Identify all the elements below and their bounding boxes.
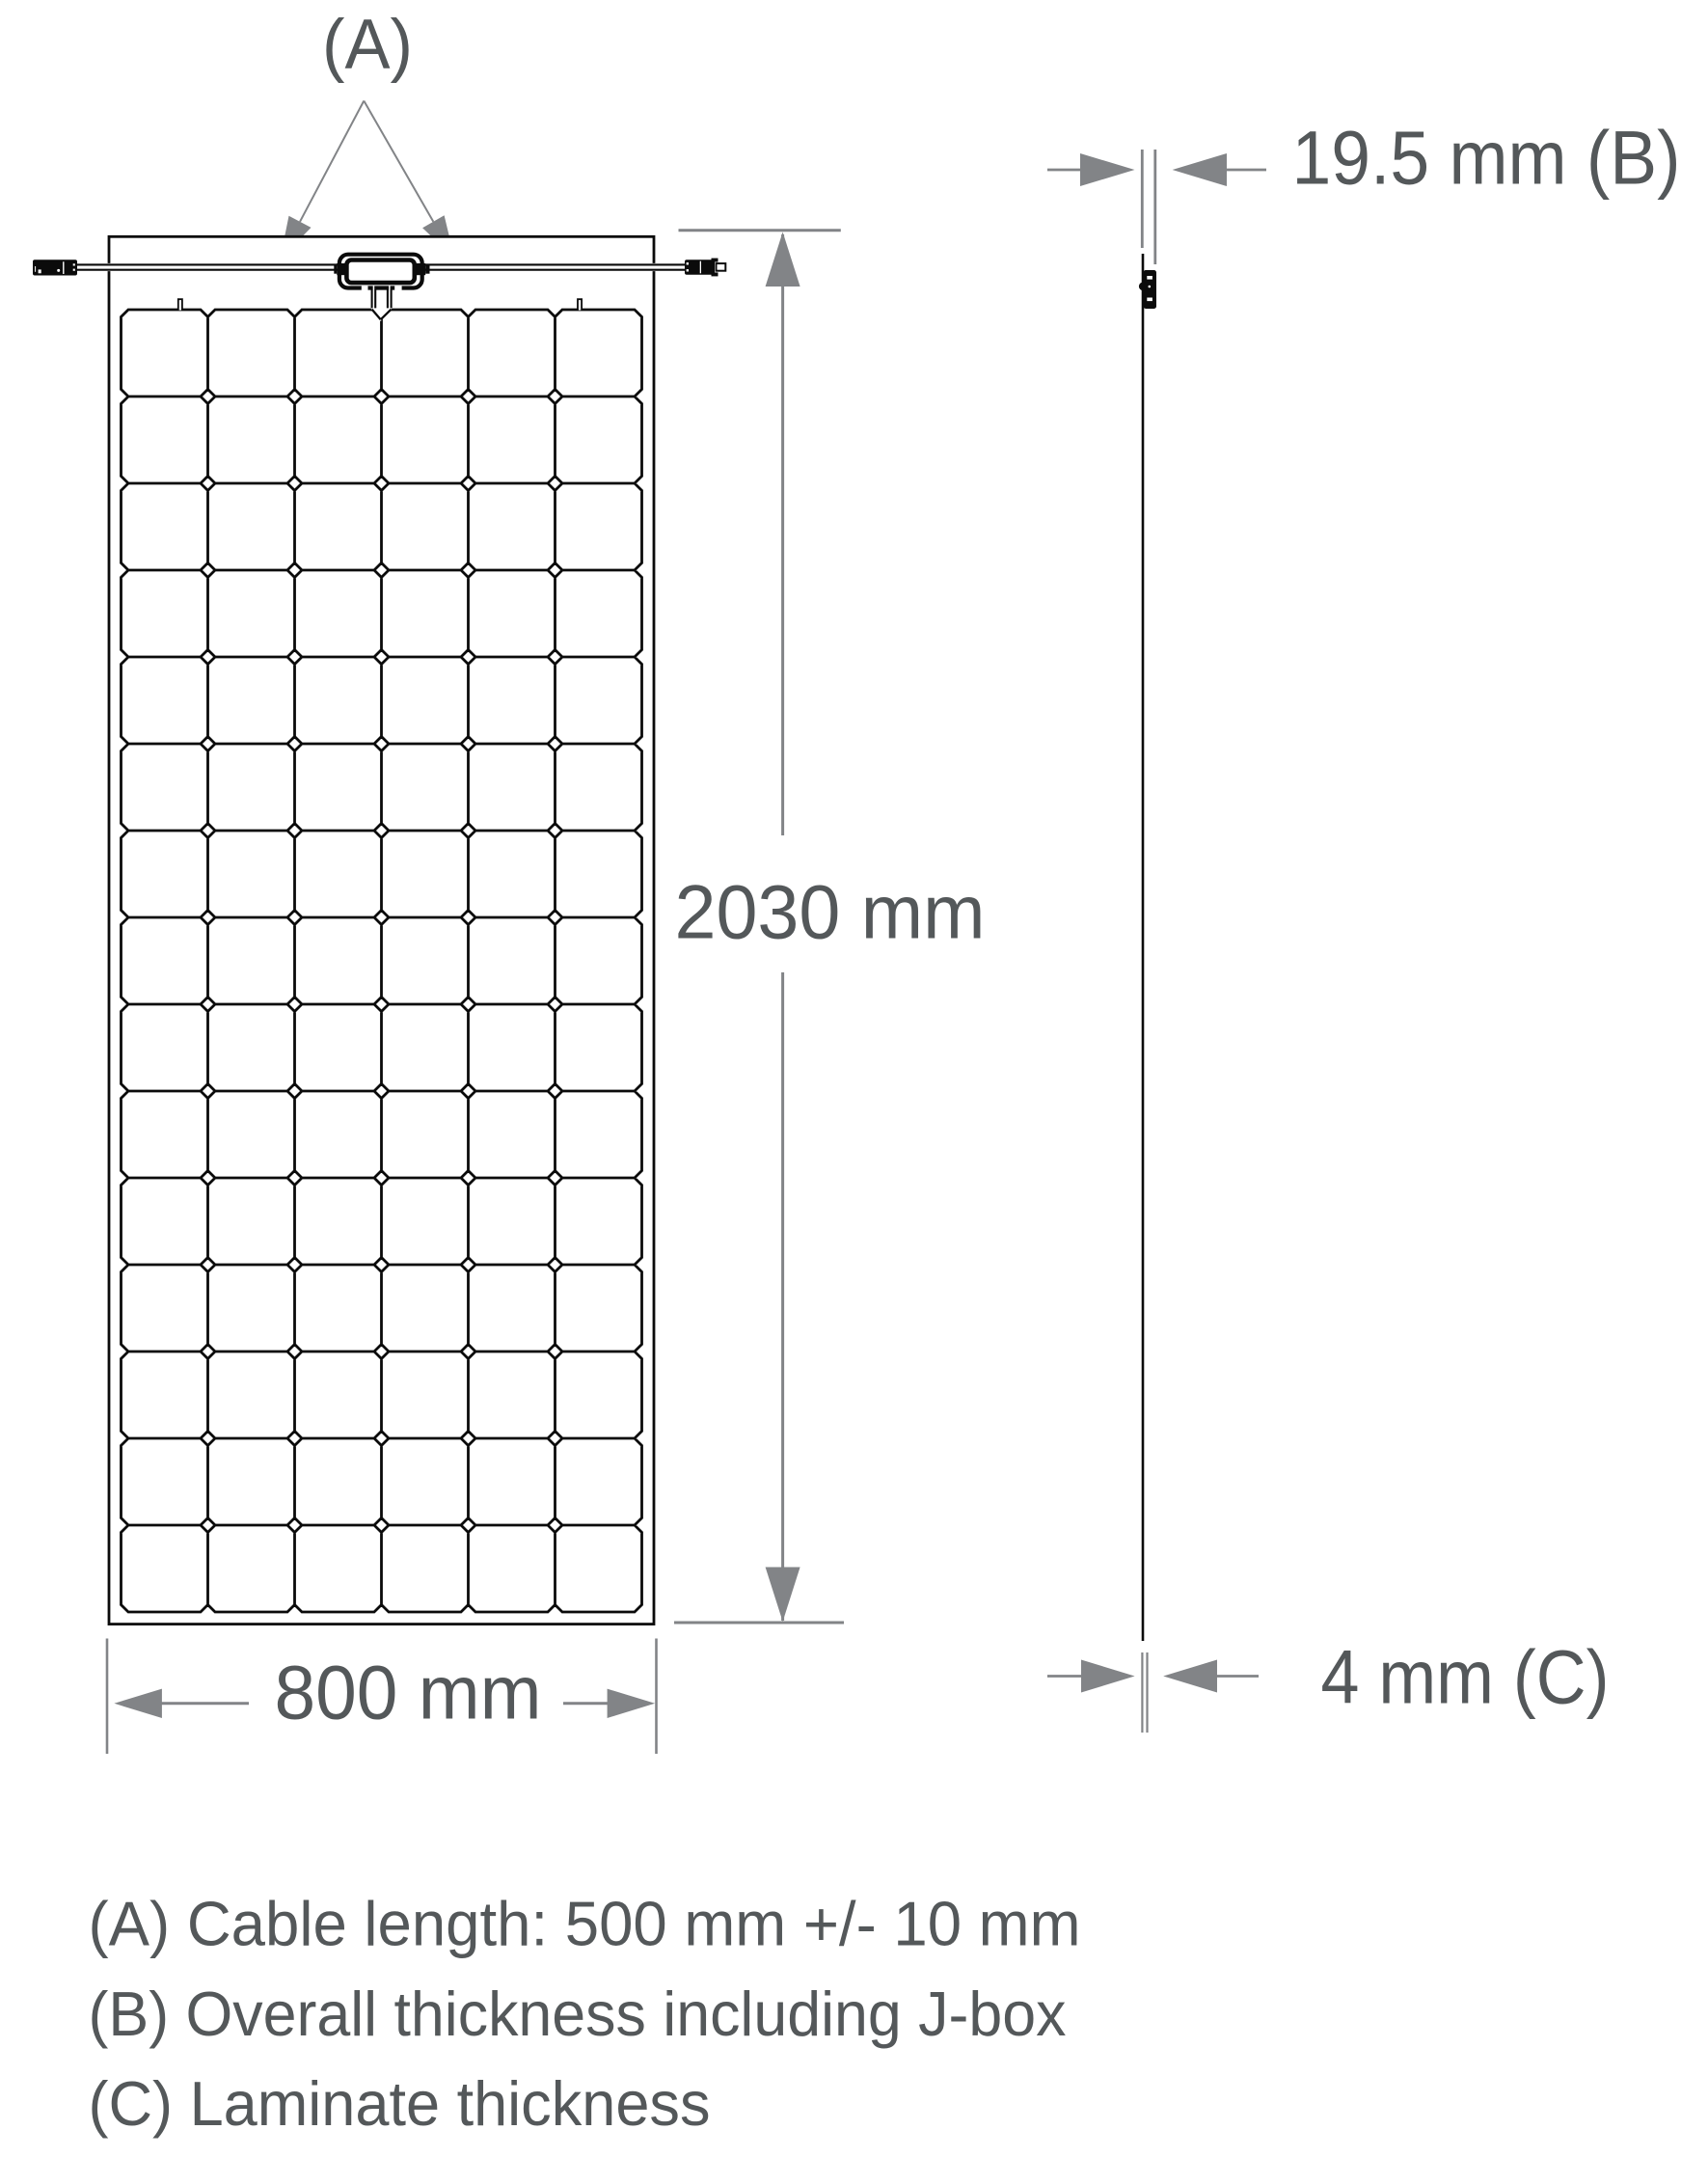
svg-text:(C) Laminate thickness: (C) Laminate thickness: [89, 2069, 711, 2139]
svg-text:(B) Overall thickness includin: (B) Overall thickness including J-box: [89, 1980, 1067, 2049]
svg-text:800 mm: 800 mm: [275, 1650, 542, 1735]
svg-text:19.5 mm (B): 19.5 mm (B): [1292, 115, 1681, 201]
svg-text:(A): (A): [322, 6, 413, 84]
svg-text:4 mm (C): 4 mm (C): [1321, 1634, 1610, 1720]
svg-text:(A) Cable length: 500 mm +/- 1: (A) Cable length: 500 mm +/- 10 mm: [89, 1890, 1081, 1959]
svg-text:2030 mm: 2030 mm: [675, 868, 986, 954]
